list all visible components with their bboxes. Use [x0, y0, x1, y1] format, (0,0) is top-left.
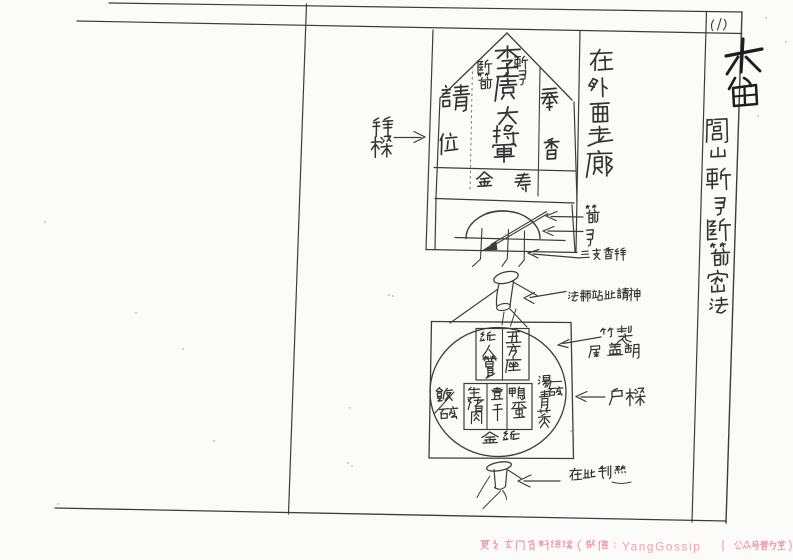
svg-text:YangGossip: YangGossip — [622, 540, 701, 554]
